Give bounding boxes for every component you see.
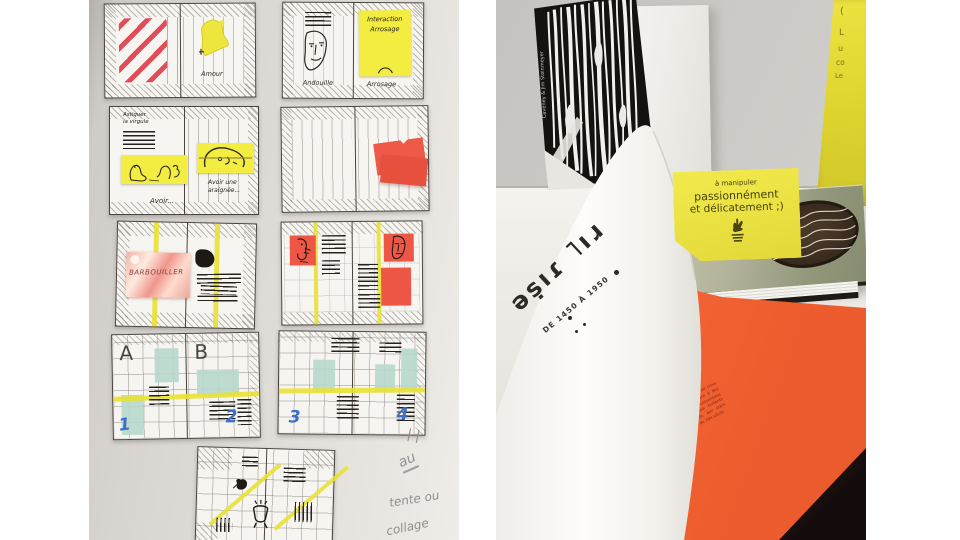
scribble-lines <box>197 273 241 284</box>
teal-block <box>313 360 335 392</box>
sketch-layout-1-2: A B 1 2 <box>111 332 261 441</box>
left-photo-sketch-wall: Amour Andouille Interaction Arrosage <box>89 0 459 540</box>
page-bars <box>292 119 353 200</box>
sketch-red-note <box>280 105 429 213</box>
two-figures-doodle-icon <box>121 155 187 184</box>
sketch-label: Arrosage <box>367 80 396 88</box>
hatch-corner <box>196 522 219 540</box>
hatch-right <box>244 3 256 96</box>
title-line: la virgule <box>123 119 149 126</box>
spread-spine <box>354 107 356 211</box>
hatch-left <box>283 3 293 98</box>
teal-block <box>154 348 179 382</box>
yellow-highlight-band <box>279 387 425 393</box>
teal-block <box>401 349 417 391</box>
sketch-barbouiller: BARBOUILLER <box>115 221 257 330</box>
scribble-lines <box>201 285 237 295</box>
sketch-diagonals <box>195 446 336 540</box>
text-lines-drawing <box>322 260 340 276</box>
text-lines-drawing <box>322 235 346 255</box>
page-number: 3 <box>289 407 301 427</box>
letter-label: B <box>194 340 208 364</box>
interaction-arrosage-sticky: Interaction Arrosage <box>359 10 412 77</box>
pot-doodle-icon <box>248 499 273 530</box>
page-number: 2 <box>225 407 237 427</box>
sketch-layout-3-4: 3 4 <box>277 330 426 436</box>
sketch-label: Andouille <box>303 79 333 87</box>
title-line: Astiquer <box>123 112 149 119</box>
pencil-note: tente ou <box>388 488 440 510</box>
hatch-corner <box>198 447 233 470</box>
yellow-bell-cutout <box>191 18 233 58</box>
printed-dot <box>614 270 619 275</box>
face-sticky <box>197 143 254 173</box>
sticky-text-line: Interaction <box>359 15 411 25</box>
text-lines-drawing <box>358 294 380 308</box>
text-lines-drawing <box>237 399 251 425</box>
red-square-face <box>384 233 414 261</box>
text-lines-drawing <box>123 131 155 151</box>
red-folded-note-flap <box>380 154 428 186</box>
manipulation-card: à manipuler passionnément et délicatemen… <box>672 168 801 262</box>
sketch-arrosage: Andouille Interaction Arrosage Arrosage <box>282 2 425 100</box>
hatch-left <box>105 4 117 97</box>
face-drawing-icon <box>297 28 333 74</box>
profile-face-doodle-icon <box>197 143 254 173</box>
text-lines-drawing <box>149 386 169 406</box>
smile-doodle-icon <box>375 64 395 74</box>
spread-spine <box>185 334 188 438</box>
foil-text: BARBOUILLER <box>129 268 184 277</box>
figures-sticky <box>121 155 187 184</box>
foil-glare <box>130 255 139 264</box>
front-face-doodle-icon <box>384 233 414 261</box>
sketch-amour: Amour <box>104 2 257 98</box>
label-line: Avoir une <box>208 179 240 187</box>
sketch-label: Avoir une araignée... <box>208 179 240 196</box>
sketch-label: Amour <box>201 70 223 78</box>
black-blob-drawing <box>195 249 214 267</box>
red-rectangle <box>381 267 411 305</box>
text-lines-drawing <box>305 12 331 27</box>
red-stripes-drawing <box>119 18 167 82</box>
text-lines-drawing <box>283 468 305 485</box>
text-lines-drawing <box>379 342 401 354</box>
pencil-note: au <box>396 449 420 473</box>
sketch-title: Astiquer la virgule <box>123 112 149 126</box>
sticky-text-line: Arrosage <box>359 25 411 35</box>
watering-can-doodle-icon <box>231 476 251 493</box>
right-photo-book-display: Caveney & Jim Steinmeyer ( L u co Le <box>496 0 866 540</box>
page-number: 4 <box>397 404 409 424</box>
red-square-face <box>290 235 316 265</box>
hatch-right <box>413 3 423 98</box>
hand-icon <box>727 217 748 244</box>
barcode-lines-drawing <box>294 502 313 522</box>
sketch-label: Avoir... <box>150 197 174 205</box>
text-lines-drawing <box>242 456 258 468</box>
hatch-right <box>242 224 256 328</box>
pencil-tick-marks: | | <box>406 427 422 444</box>
printed-dot <box>583 323 586 326</box>
photo-collage: Amour Andouille Interaction Arrosage <box>0 0 960 540</box>
spread-spine <box>353 3 354 98</box>
profile-face-doodle-icon <box>290 235 316 265</box>
scribble-lines <box>197 296 237 304</box>
page-number: 1 <box>117 414 131 435</box>
sketch-avoir: Astiquer la virgule Avoir... <box>109 106 259 215</box>
barcode-lines-drawing <box>216 518 232 532</box>
letter-label: A <box>119 341 133 365</box>
printed-dot <box>568 316 572 320</box>
text-lines-drawing <box>337 396 359 420</box>
label-line: araignée... <box>208 187 240 195</box>
text-lines-drawing <box>358 264 378 290</box>
hatch-corner <box>304 450 334 469</box>
printed-dot <box>575 330 578 333</box>
pink-foil-cutout: BARBOUILLER <box>126 252 191 298</box>
text-lines-drawing <box>331 338 359 354</box>
pencil-note: collage <box>385 516 430 539</box>
spread-spine <box>180 4 182 97</box>
sketch-mondrian-faces <box>281 220 424 325</box>
page-bars <box>167 17 179 84</box>
